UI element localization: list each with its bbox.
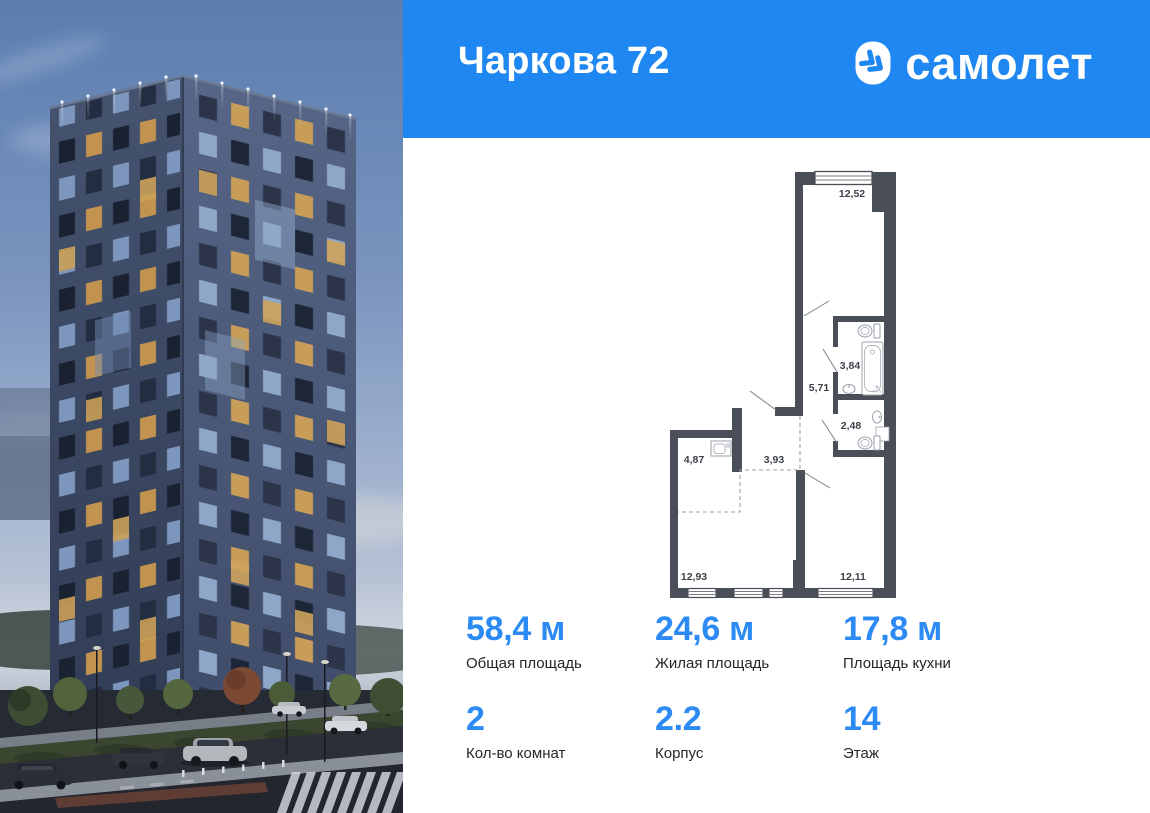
building-photo <box>0 0 403 813</box>
plan-windows <box>688 172 873 598</box>
stat-kitchen-area: 17,8 м Площадь кухни <box>843 612 1028 672</box>
stat-value: 58,4 м <box>466 612 651 646</box>
stat-living-area: 24,6 м Жилая площадь <box>655 612 840 672</box>
brand-logo: самолет <box>855 40 1093 86</box>
room-area-label: 2,48 <box>841 420 862 432</box>
samolet-chevron-icon <box>855 41 891 85</box>
room-area-label: 12,11 <box>840 571 866 583</box>
content-panel: 12,52 3,84 5,71 2,48 4,87 3,93 12,93 12,… <box>403 138 1150 813</box>
stat-label: Кол-во комнат <box>466 745 651 762</box>
building-scene <box>0 0 403 813</box>
brand-name: самолет <box>905 41 1093 86</box>
stat-building: 2.2 Корпус <box>655 702 840 762</box>
room-area-label: 5,71 <box>809 382 830 394</box>
stat-total-area: 58,4 м Общая площадь <box>466 612 651 672</box>
stat-label: Корпус <box>655 745 840 762</box>
listing-card: Чаркова 72 самолет <box>0 0 1150 813</box>
room-area-label: 12,52 <box>839 188 865 200</box>
stat-label: Площадь кухни <box>843 655 1028 672</box>
toilet-icon <box>874 324 880 338</box>
room-labels: 12,52 3,84 5,71 2,48 4,87 3,93 12,93 12,… <box>681 188 866 583</box>
stat-label: Этаж <box>843 745 1028 762</box>
stat-value: 2 <box>466 702 651 736</box>
stat-value: 2.2 <box>655 702 840 736</box>
stat-label: Жилая площадь <box>655 655 840 672</box>
stat-value: 14 <box>843 702 1028 736</box>
header-banner: Чаркова 72 самолет <box>403 0 1150 138</box>
room-area-label: 4,87 <box>684 454 705 466</box>
stat-floor: 14 Этаж <box>843 702 1028 762</box>
room-area-label: 12,93 <box>681 571 707 583</box>
room-area-label: 3,93 <box>764 454 785 466</box>
toilet-icon-2 <box>874 436 880 450</box>
stat-rooms-count: 2 Кол-во комнат <box>466 702 651 762</box>
stat-value: 17,8 м <box>843 612 1028 646</box>
room-area-label: 3,84 <box>840 360 861 372</box>
stat-label: Общая площадь <box>466 655 651 672</box>
stat-value: 24,6 м <box>655 612 840 646</box>
page-title: Чаркова 72 <box>458 40 670 83</box>
floor-plan: 12,52 3,84 5,71 2,48 4,87 3,93 12,93 12,… <box>640 150 930 620</box>
